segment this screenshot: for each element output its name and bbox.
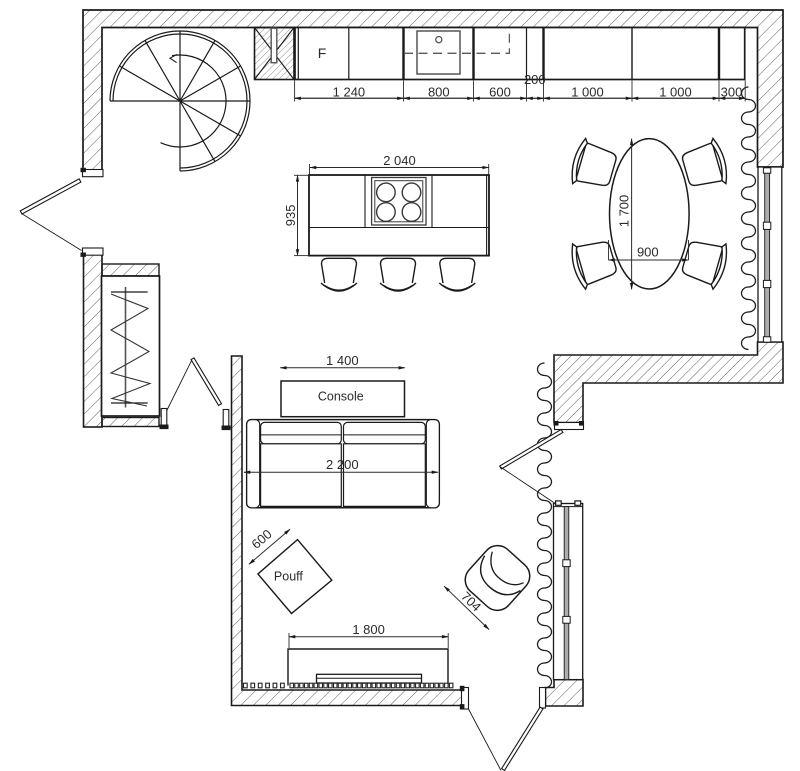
svg-text:2 040: 2 040: [383, 153, 416, 168]
svg-text:F: F: [318, 45, 327, 61]
svg-text:1 700: 1 700: [617, 195, 632, 228]
svg-text:2 200: 2 200: [326, 457, 359, 472]
svg-text:1 000: 1 000: [659, 85, 692, 100]
svg-text:935: 935: [283, 205, 298, 227]
svg-text:Console: Console: [318, 390, 364, 404]
svg-text:1 800: 1 800: [352, 622, 385, 637]
svg-text:1 240: 1 240: [333, 85, 366, 100]
svg-text:200: 200: [524, 72, 546, 87]
svg-text:Pouff: Pouff: [274, 569, 303, 583]
svg-text:600: 600: [248, 526, 274, 552]
svg-text:800: 800: [428, 85, 450, 100]
svg-text:1 400: 1 400: [326, 353, 359, 368]
svg-text:1 000: 1 000: [571, 85, 604, 100]
svg-text:300: 300: [721, 85, 743, 100]
svg-text:600: 600: [489, 85, 511, 100]
svg-text:900: 900: [637, 245, 659, 260]
svg-text:704: 704: [458, 589, 484, 615]
